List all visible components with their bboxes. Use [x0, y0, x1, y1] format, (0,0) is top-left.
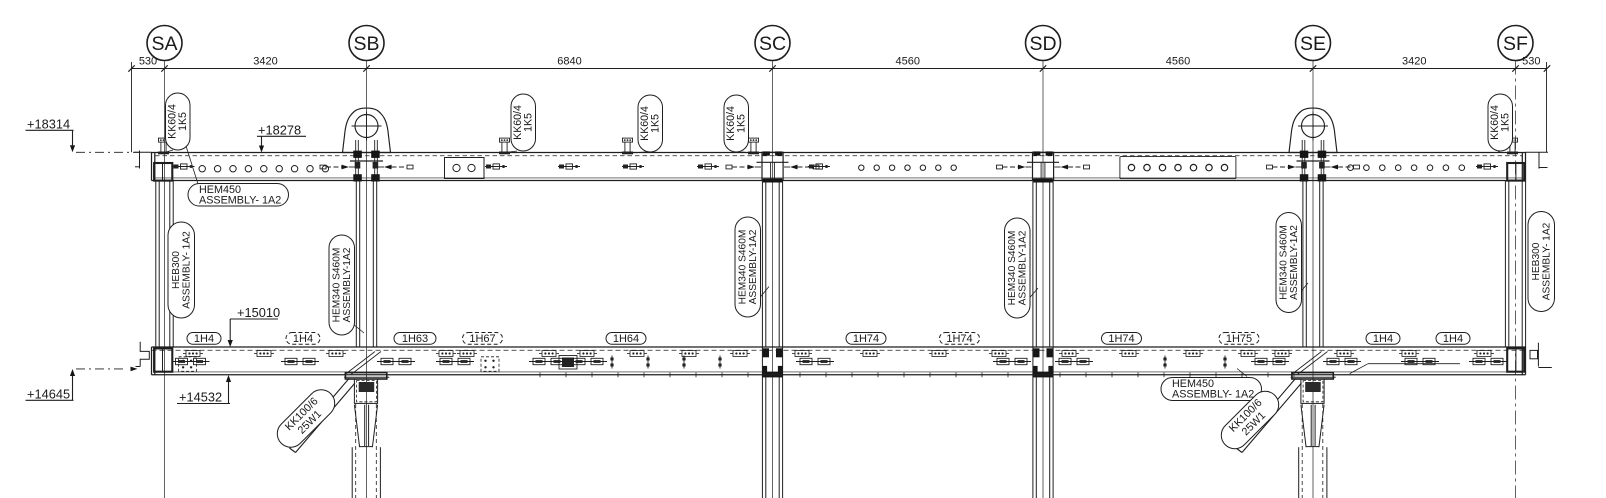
svg-text:1H4: 1H4 — [1443, 333, 1463, 345]
svg-text:1K5: 1K5 — [522, 113, 534, 132]
svg-text:ASSEMBLY- 1A2: ASSEMBLY- 1A2 — [181, 231, 192, 309]
svg-text:1H74: 1H74 — [853, 333, 879, 345]
svg-text:1H4: 1H4 — [1373, 333, 1393, 345]
svg-text:6840: 6840 — [557, 56, 581, 68]
svg-text:+15010: +15010 — [237, 305, 280, 320]
svg-text:1H4: 1H4 — [194, 333, 214, 345]
svg-text:ASSEMBLY-1A2: ASSEMBLY-1A2 — [342, 247, 353, 322]
svg-text:3420: 3420 — [253, 56, 277, 68]
svg-text:HEM340 S460M: HEM340 S460M — [1007, 231, 1018, 306]
svg-text:SB: SB — [353, 33, 379, 55]
svg-text:+14645: +14645 — [27, 386, 70, 401]
svg-text:ASSEMBLY- 1A2: ASSEMBLY- 1A2 — [1541, 222, 1552, 300]
svg-text:1H74: 1H74 — [1108, 333, 1134, 345]
svg-text:3420: 3420 — [1402, 56, 1426, 68]
svg-text:SF: SF — [1503, 33, 1528, 55]
svg-text:ASSEMBLY-1A2: ASSEMBLY-1A2 — [1289, 225, 1300, 300]
svg-text:4560: 4560 — [1166, 56, 1190, 68]
svg-text:1K5: 1K5 — [649, 114, 661, 133]
svg-text:HEB300: HEB300 — [1531, 242, 1542, 280]
svg-text:SE: SE — [1300, 33, 1326, 55]
svg-text:SC: SC — [759, 33, 786, 55]
svg-text:1K5: 1K5 — [1499, 113, 1511, 132]
svg-text:1H64: 1H64 — [613, 333, 639, 345]
svg-text:HEM340 S460M: HEM340 S460M — [738, 230, 749, 305]
svg-text:+14532: +14532 — [179, 390, 222, 405]
svg-text:ASSEMBLY-1A2: ASSEMBLY-1A2 — [748, 229, 759, 304]
svg-text:530: 530 — [139, 56, 157, 68]
svg-text:530: 530 — [1522, 56, 1540, 68]
svg-text:1K5: 1K5 — [735, 114, 747, 133]
svg-text:SD: SD — [1029, 33, 1056, 55]
svg-text:SA: SA — [151, 33, 177, 55]
svg-text:1K5: 1K5 — [177, 112, 189, 131]
svg-text:1H75: 1H75 — [1226, 333, 1252, 345]
svg-text:1H74: 1H74 — [946, 333, 972, 345]
svg-text:+18314: +18314 — [27, 116, 70, 131]
svg-text:ASSEMBLY- 1A2: ASSEMBLY- 1A2 — [1172, 388, 1254, 400]
svg-text:4560: 4560 — [896, 56, 920, 68]
svg-text:ASSEMBLY-1A2: ASSEMBLY-1A2 — [1017, 230, 1028, 305]
svg-text:1H63: 1H63 — [402, 333, 428, 345]
svg-text:1H67: 1H67 — [469, 333, 495, 345]
svg-text:+18278: +18278 — [258, 122, 301, 137]
svg-text:HEM340 S460M: HEM340 S460M — [332, 248, 343, 323]
svg-text:HEB300: HEB300 — [171, 251, 182, 289]
svg-text:1H4: 1H4 — [293, 333, 313, 345]
svg-text:ASSEMBLY- 1A2: ASSEMBLY- 1A2 — [199, 194, 281, 206]
svg-text:HEM340 S460M: HEM340 S460M — [1279, 225, 1290, 300]
